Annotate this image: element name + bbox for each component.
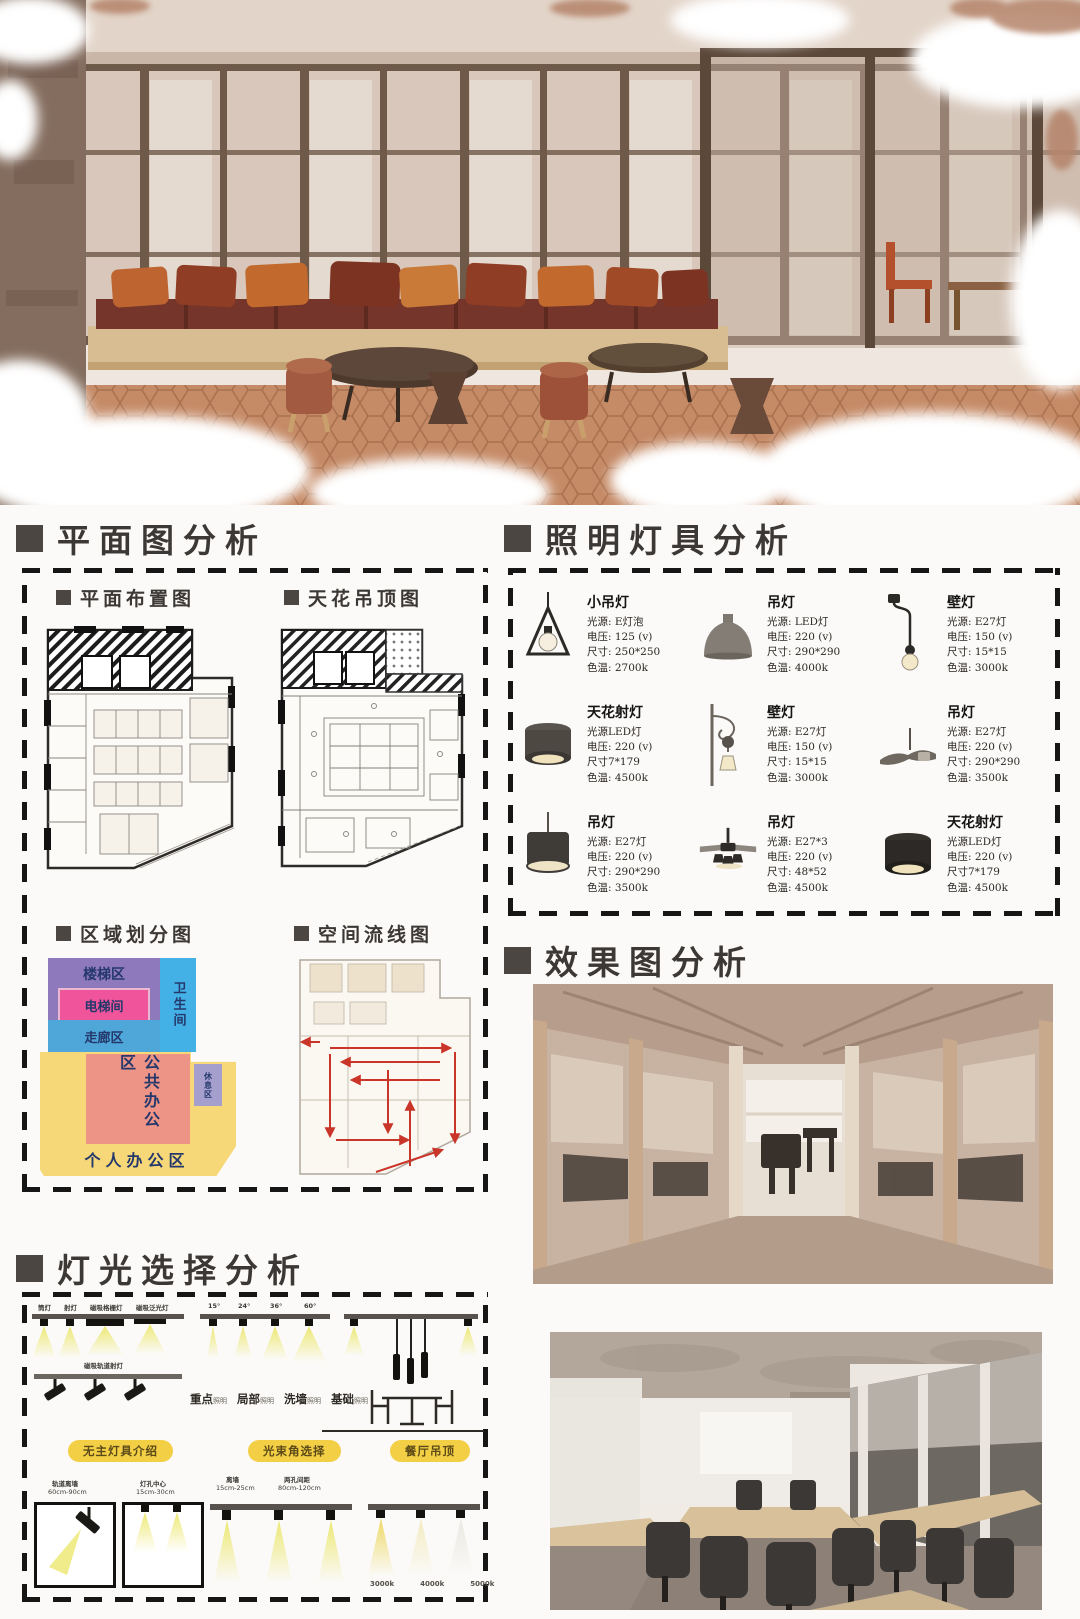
header-square-icon: [504, 947, 531, 974]
header-square-icon: [504, 525, 531, 552]
hero-lounge-render: [0, 0, 1080, 505]
zone-map: 楼梯区 卫生间 电梯间 走廊区 公共办公区 休息区 个人办公区: [38, 954, 238, 1180]
measure-title: 轨道离墙: [52, 1478, 78, 1488]
pendant-cord: [410, 1319, 412, 1359]
label-square-icon: [284, 590, 299, 605]
section-title: 平面图分析: [57, 514, 267, 562]
pendant-tube: [393, 1354, 400, 1380]
triangle-pendant-icon: [518, 592, 578, 694]
pendant-tube: [421, 1352, 428, 1378]
floor-plan-drawing: [34, 614, 252, 886]
section-header-plan-analysis: 平面图分析: [16, 514, 267, 562]
measure-value: 60cm-90cm: [48, 1488, 87, 1496]
measure-value: 15cm-25cm: [216, 1484, 255, 1492]
label-square-icon: [56, 926, 71, 941]
design-poster: { "poster": { "headers": { "plan": "平面图分…: [0, 0, 1080, 1619]
wall-lamp-icon: [878, 592, 938, 694]
render-office-image: [550, 1332, 1042, 1610]
fixture-item: 小吊灯 光源: E灯泡 电压: 125 (v) 尺寸: 250*250 色温: …: [518, 584, 698, 694]
pendant-cord: [396, 1319, 398, 1355]
angled-spotlight-icon: [37, 1505, 113, 1585]
measure-title: 灯孔中心: [140, 1478, 166, 1488]
track-wall-distance-box: [34, 1502, 116, 1588]
drum-pendant-icon: [518, 812, 578, 914]
wide-pendant-icon: [878, 702, 938, 804]
fixture-item: 壁灯 光源: E27灯 电压: 150 (v) 尺寸: 15*15 色温: 30…: [878, 584, 1058, 694]
pillows: [111, 261, 709, 308]
measure-title: 两孔间距: [284, 1474, 310, 1484]
fixture-item: 天花射灯 光源LED灯 电压: 220 (v) 尺寸7*179 色温: 4500…: [518, 694, 698, 804]
label-square-icon: [56, 590, 71, 605]
flow-map-drawing: [290, 950, 480, 1182]
fixture-item: 吊灯 光源: LED灯 电压: 220 (v) 尺寸: 290*290 色温: …: [698, 584, 878, 694]
zone-map-label: 区域划分图: [56, 920, 195, 947]
zone-personal-office-label: 个人办公区: [52, 1146, 222, 1172]
section-header-fixture-analysis: 照明灯具分析: [504, 514, 797, 562]
angled-spotlight-icon: [122, 1379, 148, 1405]
fixture-item: 吊灯 光源: E27灯 电压: 220 (v) 尺寸: 290*290 色温: …: [518, 804, 698, 914]
pill-beam-angle: 光束角选择: [248, 1440, 341, 1462]
flow-map-label: 空间流线图: [294, 920, 433, 947]
ceiling-plan-label: 天花吊顶图: [284, 584, 423, 611]
flood-light: [134, 1319, 166, 1324]
beam-angle-label: 24°: [238, 1302, 250, 1310]
pill-no-main-light: 无主灯具介绍: [68, 1440, 173, 1462]
beam-angle-label: 36°: [270, 1302, 282, 1310]
hero-lounge-image: [0, 0, 1080, 505]
zone-rest: 休息区: [194, 1064, 222, 1106]
section-header-light-selection: 灯光选择分析: [16, 1244, 309, 1292]
measure-value: 15cm-30cm: [136, 1488, 175, 1496]
ceiling-plan-drawing: [270, 614, 476, 886]
zone-public-office: 公共办公区: [86, 1054, 190, 1144]
section-header-render-analysis: 效果图分析: [504, 936, 755, 984]
render-corridor-image: [533, 984, 1053, 1284]
angled-spotlight-icon: [42, 1379, 68, 1405]
lighting-modes: 重点照明 局部照明 洗墙照明 基础照明: [190, 1388, 368, 1407]
color-temp-labels: 3000k 4000k 5000k: [370, 1580, 494, 1588]
fixture-item: 吊灯 光源: E27*3 电压: 220 (v) 尺寸: 48*52 色温: 4…: [698, 804, 878, 914]
ornate-wall-lamp-icon: [698, 702, 758, 804]
header-square-icon: [16, 1255, 43, 1282]
pendant-tube: [407, 1358, 414, 1384]
grille-light: [86, 1319, 124, 1326]
plan-panel: 平面布置图 天花吊顶图: [22, 568, 488, 1192]
magnet-track-label: 磁吸轨道射灯: [84, 1360, 123, 1370]
fan-light-icon: [698, 812, 758, 914]
fixtures-grid: 小吊灯 光源: E灯泡 电压: 125 (v) 尺寸: 250*250 色温: …: [514, 578, 1058, 916]
track-type-label: 磁吸格栅灯: [90, 1302, 123, 1312]
floor-plan-label: 平面布置图: [56, 584, 195, 611]
section-title: 效果图分析: [545, 936, 755, 984]
beam-angle-label: 60°: [304, 1302, 316, 1310]
section-title: 灯光选择分析: [57, 1244, 309, 1292]
track-type-label: 筒灯: [38, 1302, 51, 1312]
zone-restroom: 卫生间: [160, 958, 196, 1052]
fixture-item: 壁灯 光源: E27灯 电压: 150 (v) 尺寸: 15*15 色温: 30…: [698, 694, 878, 804]
ceiling-spotlight-icon: [518, 702, 578, 804]
ceiling-spotlight-icon: [878, 812, 938, 914]
fixture-item: 天花射灯 光源LED灯 电压: 220 (v) 尺寸7*179 色温: 4500…: [878, 804, 1058, 914]
zone-corridor: 走廊区: [48, 1020, 160, 1052]
track-type-label: 磁吸泛光灯: [136, 1302, 169, 1312]
angled-spotlight-icon: [82, 1379, 108, 1405]
beam-angle-label: 15°: [208, 1302, 220, 1310]
light-selection-panel: 筒灯 射灯 磁吸格栅灯 磁吸泛光灯 15° 24° 36° 60° 磁吸轨道射灯…: [22, 1292, 488, 1602]
measure-title: 离墙: [226, 1474, 239, 1484]
header-square-icon: [16, 525, 43, 552]
lamp-hole-center-box: [122, 1502, 204, 1588]
dining-table-icon: [352, 1384, 472, 1432]
zone-elevator: 电梯间: [58, 988, 150, 1022]
measure-value: 80cm-120cm: [278, 1484, 321, 1492]
pendant-cord: [424, 1319, 426, 1353]
floor-line: [322, 1430, 484, 1432]
label-square-icon: [294, 926, 309, 941]
fixture-item: 吊灯 光源: E27灯 电压: 220 (v) 尺寸: 290*290 色温: …: [878, 694, 1058, 804]
track-type-label: 射灯: [64, 1302, 77, 1312]
dome-pendant-icon: [698, 592, 758, 694]
section-title: 照明灯具分析: [545, 514, 797, 562]
pill-dining-ceiling: 餐厅吊顶: [390, 1440, 470, 1462]
